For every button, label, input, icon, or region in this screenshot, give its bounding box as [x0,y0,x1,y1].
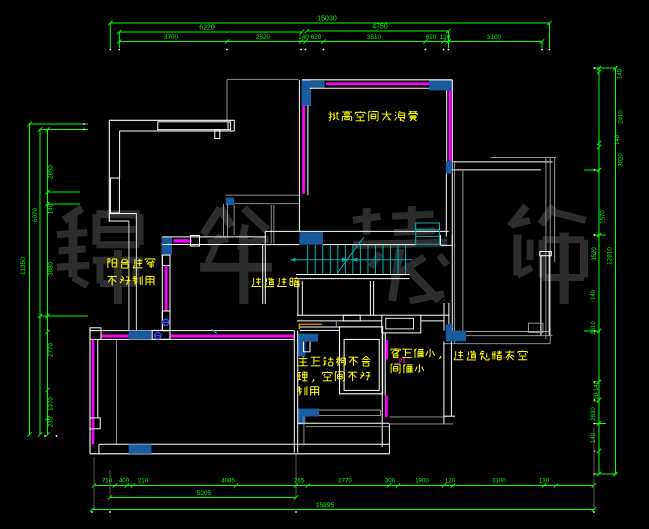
svg-text:3100: 3100 [492,478,506,485]
svg-text:300: 300 [385,478,396,485]
svg-text:3880: 3880 [48,262,55,276]
svg-text:620: 620 [311,34,322,41]
svg-text:235: 235 [48,416,55,427]
svg-text:140: 140 [591,289,597,300]
svg-text:3100: 3100 [487,34,502,41]
svg-text:3700: 3700 [164,34,179,41]
svg-text:12810: 12810 [607,247,614,265]
svg-text:5205: 5205 [197,490,212,497]
svg-text:2830: 2830 [591,407,597,421]
svg-text:4750: 4750 [372,24,388,31]
svg-text:1900: 1900 [415,478,429,485]
svg-text:1370: 1370 [48,397,55,411]
svg-text:210: 210 [138,478,149,485]
svg-text:15030: 15030 [317,16,337,23]
svg-text:15895: 15895 [316,502,335,509]
svg-text:400: 400 [119,478,130,485]
svg-text:140: 140 [48,203,55,214]
svg-text:265: 265 [294,478,305,485]
svg-text:140: 140 [618,68,624,79]
svg-text:130: 130 [539,478,550,485]
svg-text:3020: 3020 [619,153,625,167]
svg-text:2610: 2610 [591,321,597,335]
svg-text:2410: 2410 [619,110,625,124]
svg-text:11350: 11350 [20,257,27,275]
svg-text:2850: 2850 [48,165,55,179]
svg-text:120: 120 [445,478,456,485]
svg-text:3510: 3510 [367,34,382,41]
svg-text:P8: P8 [398,359,406,365]
svg-text:6070: 6070 [32,207,39,222]
svg-text:3520: 3520 [592,247,598,261]
svg-text:2770: 2770 [48,343,55,357]
svg-text:2770: 2770 [338,478,352,485]
svg-text:2520: 2520 [256,34,271,41]
svg-text:4085: 4085 [221,478,235,485]
svg-text:710: 710 [102,478,113,485]
svg-text:140: 140 [615,134,621,145]
svg-text:6220: 6220 [199,25,215,32]
svg-text:1570: 1570 [601,210,607,224]
